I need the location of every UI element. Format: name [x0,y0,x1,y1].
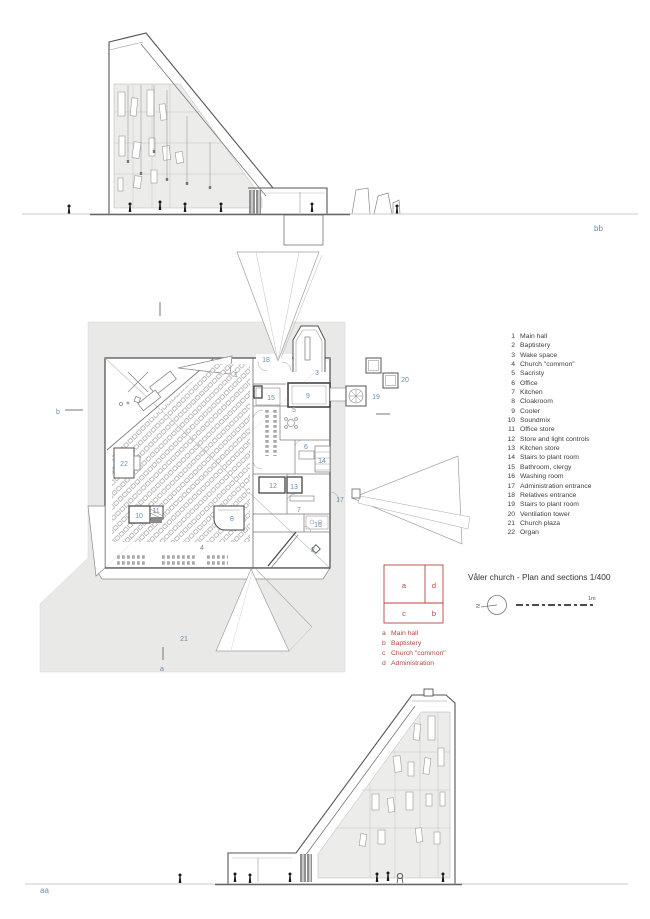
legend-item: 12Store and light controls [504,435,650,444]
room-number-20: 20 [401,377,409,384]
legend-item-number: 21 [504,519,515,528]
key-entry: dAdministration [382,659,446,669]
room-number-6: 6 [304,444,308,451]
section-label-aa: aa [40,886,49,895]
room-number-16: 16 [314,522,322,529]
legend-item: 21Church plaza [504,519,650,528]
legend-item-number: 7 [504,388,515,397]
room-number-19: 19 [372,394,380,401]
key-entry-letter: a [382,629,391,639]
room-number-2: 2 [311,547,315,554]
legend-item: 6Office [504,379,650,388]
key-entry-label: Church "common" [391,649,446,659]
legend-item: 17Administration entrance [504,482,650,491]
room-number-22: 22 [120,461,128,468]
legend-item: 22Organ [504,528,650,537]
room-number-1: 1 [234,372,238,379]
legend-item-number: 9 [504,407,515,416]
legend-item-label: Organ [520,528,539,537]
legend-item: 3Wake space [504,351,650,360]
section-aa-drawing [25,689,628,885]
key-entry-label: Main hall [391,629,418,639]
basement-box [284,215,323,245]
legend-item: 1Main hall [504,332,650,341]
legend-item-number: 11 [504,425,515,434]
legend-item: 20Ventilation tower [504,510,650,519]
legend-item-number: 4 [504,360,515,369]
legend-item-number: 2 [504,341,515,350]
legend-item: 8Cloakroom [504,397,650,406]
key-entry-label: Baptistery [391,639,421,649]
legend-item-label: Stairs to plant room [520,500,579,509]
legend-item-label: Washing room [520,472,564,481]
legend-item-label: Church plaza [520,519,560,528]
north-arrow: N [476,596,507,615]
section-marker-b: b [56,409,60,416]
room-number-5: 5 [292,407,296,414]
key-entry-letter: b [382,639,391,649]
key-entry: cChurch "common" [382,649,446,659]
legend-item-label: Relatives entrance [520,491,576,500]
legend-item-label: Stairs to plant room [520,453,579,462]
key-entry-label: Administration [391,659,434,669]
legend-item: 11Office store [504,425,650,434]
zoning-key-labels: aMain hall bBaptistery cChurch "common" … [382,629,446,669]
legend-item: 19Stairs to plant room [504,500,650,509]
legend-item-number: 22 [504,528,515,537]
legend-item: 4Church "common" [504,360,650,369]
legend-item-number: 5 [504,369,515,378]
legend-item-number: 16 [504,472,515,481]
legend-item-label: Administration entrance [520,482,591,491]
legend-item-number: 3 [504,351,515,360]
legend-item-label: Sacristy [520,369,544,378]
key-cell-a: a [402,581,407,590]
legend-item-label: Office [520,379,538,388]
legend-item-label: Baptistery [520,341,550,350]
legend-item: 2Baptistery [504,341,650,350]
room-number-18: 18 [262,357,270,364]
section-bb-drawing [22,33,638,245]
room-number-12: 12 [269,483,277,490]
legend-item: 16Washing room [504,472,650,481]
room-number-8: 8 [230,516,234,523]
legend-item-number: 15 [504,463,515,472]
legend-item-label: Kitchen store [520,444,560,453]
legend-item: 15Bathroom, clergy [504,463,650,472]
legend-item-number: 10 [504,416,515,425]
legend-item-label: Office store [520,425,555,434]
key-entry-letter: d [382,659,391,669]
legend-item-number: 20 [504,510,515,519]
room-number-17: 17 [336,497,344,504]
legend-item: 18Relatives entrance [504,491,650,500]
legend-item-label: Bathroom, clergy [520,463,571,472]
legend-item-label: Wake space [520,351,557,360]
legend-item-label: Kitchen [520,388,543,397]
key-entry: bBaptistery [382,639,446,649]
room-number-15: 15 [267,395,275,402]
room-number-21: 21 [180,636,188,643]
legend-item-label: Cloakroom [520,397,553,406]
key-cell-d: d [432,581,436,590]
room-number-10: 10 [135,513,143,520]
legend-item-number: 14 [504,453,515,462]
legend-item-number: 13 [504,444,515,453]
legend-item-label: Soundmix [520,416,550,425]
key-entry: aMain hall [382,629,446,639]
room-number-14: 14 [318,458,326,465]
legend-item-number: 8 [504,397,515,406]
legend-item-label: Church "common" [520,360,575,369]
room-number-3: 3 [315,370,319,377]
drawing-title: Våler church - Plan and sections 1/400 [468,572,611,582]
section-label-bb: bb [594,224,603,233]
room-number-7: 7 [297,507,301,514]
room-number-11: 11 [152,508,159,515]
room-number-13: 13 [290,484,298,491]
scale-bar-label: 1m [588,596,596,602]
legend-item: 9Cooler [504,407,650,416]
legend-item-number: 17 [504,482,515,491]
legend-item: 13Kitchen store [504,444,650,453]
legend-item-label: Cooler [520,407,540,416]
legend-item-number: 6 [504,379,515,388]
drawing-sheet: a d c b N 1m 1 2 3 4 5 6 7 8 9 10 11 12 … [0,0,650,919]
site-objects [352,188,400,214]
legend-item-label: Main hall [520,332,547,341]
key-cell-b: b [432,609,436,618]
legend-item-number: 18 [504,491,515,500]
key-cell-c: c [402,609,406,618]
room-number-4: 4 [200,545,204,552]
legend-item: 10Soundmix [504,416,650,425]
key-entry-letter: c [382,649,391,659]
legend-item: 14Stairs to plant room [504,453,650,462]
spiral-stair [346,386,366,406]
legend-item: 5Sacristy [504,369,650,378]
north-label: N [476,604,482,608]
legend-item-number: 1 [504,332,515,341]
ventilation-towers [366,358,398,388]
room-legend: 1Main hall 2Baptistery 3Wake space 4Chur… [504,332,650,538]
legend-item-label: Store and light controls [520,435,590,444]
room-number-9: 9 [306,393,310,400]
legend-item: 7Kitchen [504,388,650,397]
legend-item-number: 19 [504,500,515,509]
legend-item-number: 12 [504,435,515,444]
section-marker-a: a [160,666,164,673]
legend-item-label: Ventilation tower [520,510,570,519]
scale-bar: 1m [516,596,596,605]
